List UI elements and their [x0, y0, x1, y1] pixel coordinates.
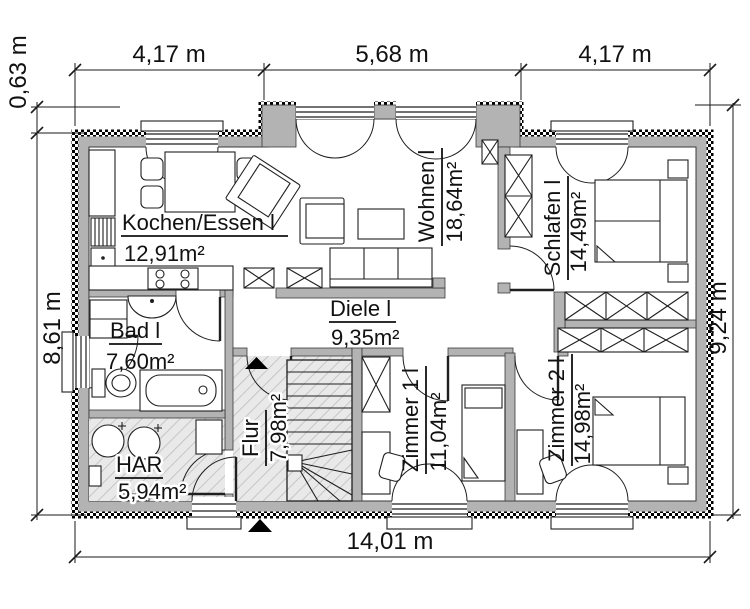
sofa — [330, 248, 432, 287]
stove — [148, 268, 198, 289]
coffee-table — [358, 209, 404, 239]
wall-zimmer1-zimmer2 — [505, 353, 515, 501]
room-area: 11,04m² — [426, 392, 451, 471]
room-name: Zimmer 2 l — [544, 358, 569, 462]
nightstand — [668, 467, 688, 484]
low-cabinet — [91, 248, 115, 268]
wall-flur-west — [225, 288, 233, 450]
single-bed-zimmer1 — [462, 385, 505, 481]
wall-diele-schlafen-cap — [498, 283, 510, 293]
room-area: 9,35m² — [331, 325, 399, 350]
room-name: Flur — [238, 419, 263, 457]
room-area: 7,60m² — [106, 349, 174, 374]
room-name: Bad l — [110, 318, 160, 343]
room-area: 14,49m² — [566, 192, 591, 273]
dining-table — [165, 152, 235, 212]
shaft — [482, 140, 498, 164]
nightstand — [668, 264, 688, 282]
room-name: Kochen/Essen l — [122, 210, 275, 235]
dim-top-left: 4,17 m — [132, 41, 205, 68]
wall-flur-north-left — [233, 348, 247, 356]
bathtub — [140, 370, 222, 411]
wohnen-parapet-end — [433, 278, 445, 288]
armchair — [300, 198, 344, 244]
entrance-arrow-icon — [248, 519, 272, 532]
room-name: Diele l — [330, 296, 391, 321]
har-cabinet — [196, 420, 222, 454]
dim-left: 8,61 m — [39, 291, 66, 364]
double-bed-schlafen — [595, 180, 687, 262]
wardrobe-schlafen-west — [505, 155, 532, 237]
wall-schlafen-zimmer2 — [565, 320, 696, 328]
desk-zimmer2 — [517, 430, 543, 494]
kitchen-counter — [89, 266, 233, 290]
wardrobe-zimmer1 — [362, 357, 390, 412]
radiator — [91, 218, 115, 246]
dim-bottom: 14,01 m — [347, 528, 434, 555]
wall-zimmer1-north-right — [448, 348, 513, 356]
dim-left-upper: 0,63 m — [5, 35, 32, 108]
har-shelf — [89, 466, 101, 486]
floor-plan-page: Kochen/Essen l 12,91m² Wohnen l 18,64m² … — [0, 0, 750, 609]
chair — [141, 186, 163, 208]
tall-cabinet — [89, 150, 115, 216]
dim-right: 9,24 m — [705, 281, 732, 354]
nightstand — [668, 160, 688, 178]
room-area: 12,91m² — [124, 241, 205, 266]
dim-top-right: 4,17 m — [578, 41, 651, 68]
bay-pier-middle — [374, 105, 396, 119]
wardrobe-schlafen-south — [565, 292, 688, 320]
room-area: 5,94m² — [118, 479, 186, 504]
room-name: HAR — [116, 452, 162, 477]
wall-flur-zimmer1 — [352, 348, 362, 501]
room-name: Zimmer 1 l — [398, 368, 423, 472]
chair — [141, 158, 163, 180]
dim-top-middle: 5,68 m — [355, 41, 428, 68]
bay-pier-left — [262, 105, 296, 147]
floor-plan-canvas: Kochen/Essen l 12,91m² Wohnen l 18,64m² … — [0, 0, 750, 609]
room-area: 14,98m² — [570, 384, 595, 465]
wardrobe-zimmer2 — [558, 328, 688, 352]
room-area: 7,98m² — [266, 394, 291, 462]
stairs — [287, 360, 352, 501]
bed-zimmer2 — [593, 397, 685, 465]
room-area: 18,64m² — [442, 162, 467, 243]
room-name: Wohnen l — [414, 150, 439, 243]
room-name: Schlafen l — [540, 180, 565, 277]
